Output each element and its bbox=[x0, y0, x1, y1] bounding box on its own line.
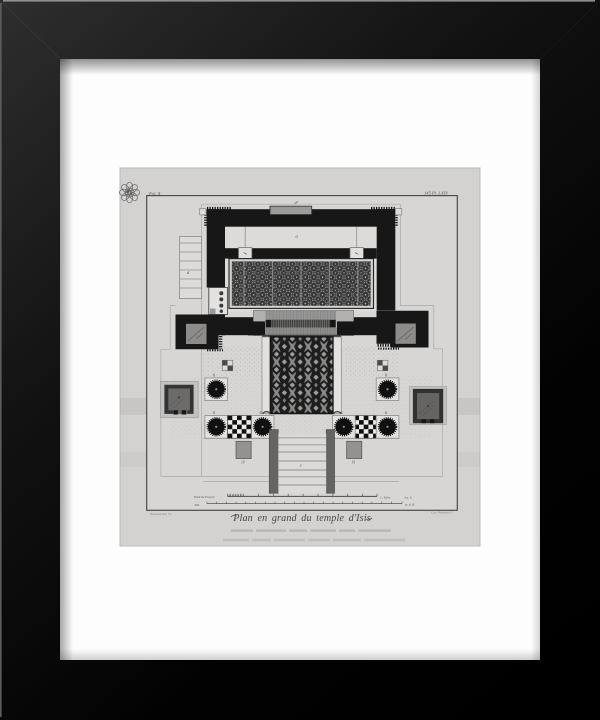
svg-text:1. Toise: 1. Toise bbox=[380, 495, 391, 499]
svg-text:Pal.: Pal. bbox=[194, 503, 201, 507]
svg-text:Pied de France: Pied de France bbox=[193, 495, 215, 499]
svg-text:6: 6 bbox=[385, 373, 387, 378]
svg-text:6: 6 bbox=[341, 410, 343, 415]
svg-text:145 Pl. LXIV: 145 Pl. LXIV bbox=[424, 191, 449, 196]
svg-text:6: 6 bbox=[213, 410, 215, 415]
svg-text:Cav. Piranesi F.: Cav. Piranesi F. bbox=[431, 511, 453, 515]
svg-text:4 a. 6: 4 a. 6 bbox=[404, 495, 412, 499]
svg-text:p. d. R.: p. d. R. bbox=[405, 502, 416, 506]
svg-text:19: 19 bbox=[352, 461, 356, 465]
svg-text:Plan en grand du temple d'Isis: Plan en grand du temple d'Isis bbox=[232, 513, 371, 524]
svg-text:6: 6 bbox=[213, 373, 215, 378]
svg-text:Piranesi del. Sc.: Piranesi del. Sc. bbox=[149, 512, 172, 516]
svg-text:19: 19 bbox=[241, 461, 245, 465]
svg-text:6: 6 bbox=[260, 410, 262, 415]
svg-text:Fol. X: Fol. X bbox=[148, 191, 161, 196]
svg-text:e: e bbox=[300, 463, 302, 468]
svg-text:6: 6 bbox=[385, 410, 387, 415]
